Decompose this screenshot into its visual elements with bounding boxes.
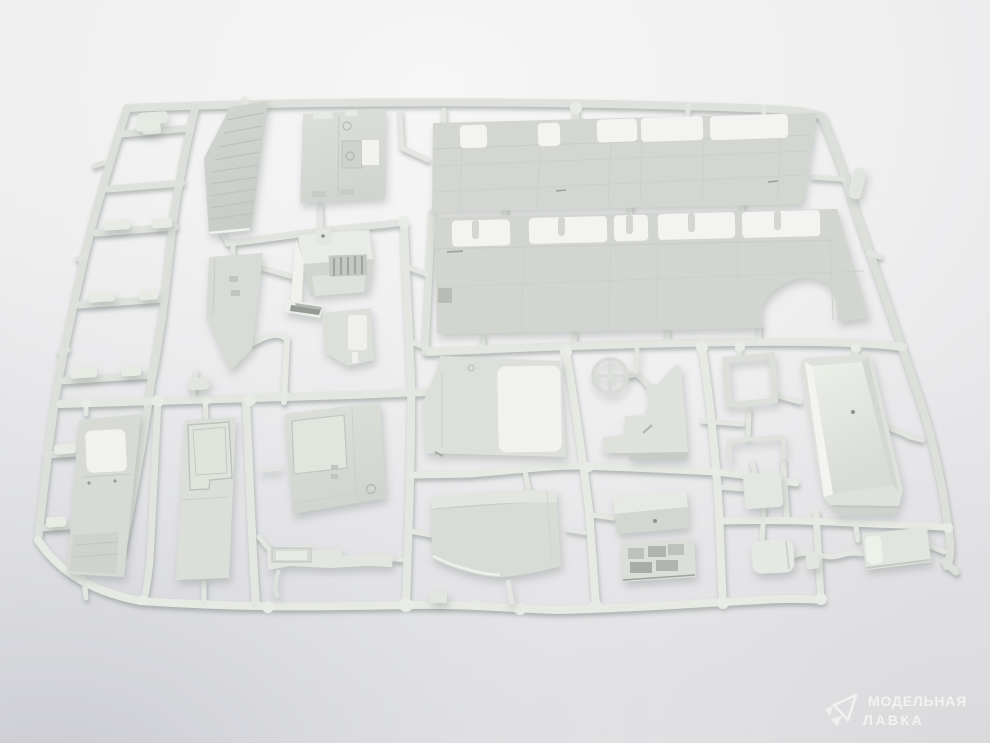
svg-text:МОДЕЛЬНАЯ: МОДЕЛЬНАЯ [868,693,967,709]
svg-text:ЛАВКА: ЛАВКА [863,712,924,728]
